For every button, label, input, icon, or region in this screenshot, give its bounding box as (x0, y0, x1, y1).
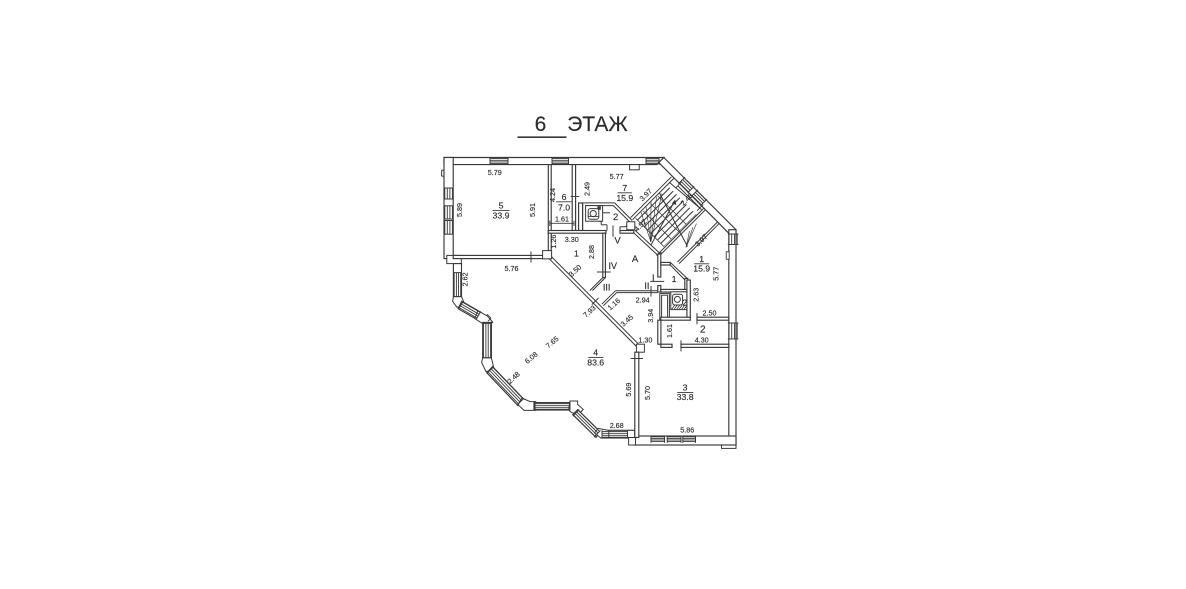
svg-text:2.68: 2.68 (610, 421, 624, 430)
svg-text:II: II (644, 281, 649, 291)
svg-text:2: 2 (700, 325, 706, 336)
svg-text:1: 1 (672, 274, 677, 284)
svg-text:IV: IV (608, 261, 617, 271)
svg-text:1: 1 (574, 248, 579, 258)
svg-text:2: 2 (682, 298, 687, 308)
svg-text:7.0: 7.0 (558, 203, 570, 213)
svg-text:4: 4 (593, 347, 598, 357)
svg-text:2.62: 2.62 (461, 272, 470, 286)
svg-text:5.79: 5.79 (488, 168, 502, 177)
svg-text:5.69: 5.69 (624, 383, 633, 397)
svg-text:7: 7 (622, 183, 627, 193)
svg-text:83.6: 83.6 (587, 358, 604, 368)
svg-text:2: 2 (613, 212, 618, 223)
svg-text:2.63: 2.63 (691, 288, 700, 302)
svg-text:5.91: 5.91 (528, 203, 537, 217)
svg-text:5.89: 5.89 (455, 203, 464, 217)
svg-text:33.8: 33.8 (677, 392, 694, 402)
svg-text:1.30: 1.30 (638, 336, 652, 345)
svg-text:15.9: 15.9 (693, 263, 710, 273)
svg-text:2.49: 2.49 (583, 182, 592, 196)
svg-text:6: 6 (562, 192, 567, 202)
svg-text:1: 1 (699, 254, 704, 264)
svg-text:5.77: 5.77 (711, 267, 720, 281)
svg-text:A: A (632, 254, 639, 265)
svg-text:I: I (652, 273, 655, 283)
svg-text:1.61: 1.61 (665, 324, 674, 338)
svg-text:4.24: 4.24 (548, 188, 557, 202)
svg-text:3.94: 3.94 (646, 309, 655, 323)
svg-text:5.70: 5.70 (643, 386, 652, 400)
svg-text:ЭТАЖ: ЭТАЖ (567, 113, 628, 136)
svg-text:6: 6 (535, 113, 547, 136)
svg-text:1.61: 1.61 (555, 215, 569, 224)
svg-text:3.30: 3.30 (565, 235, 579, 244)
svg-text:1.26: 1.26 (549, 235, 558, 249)
svg-text:4.30: 4.30 (695, 336, 709, 345)
svg-text:2.50: 2.50 (703, 308, 717, 317)
svg-text:33.9: 33.9 (493, 211, 510, 221)
svg-text:5: 5 (499, 201, 504, 211)
svg-text:5.76: 5.76 (505, 264, 519, 273)
svg-text:III: III (603, 282, 611, 292)
svg-text:V: V (614, 235, 621, 246)
svg-text:15.9: 15.9 (616, 193, 633, 203)
svg-text:2.94: 2.94 (636, 295, 650, 304)
svg-text:5.77: 5.77 (610, 172, 624, 181)
svg-text:2.88: 2.88 (587, 245, 596, 259)
svg-text:5.86: 5.86 (680, 426, 694, 435)
